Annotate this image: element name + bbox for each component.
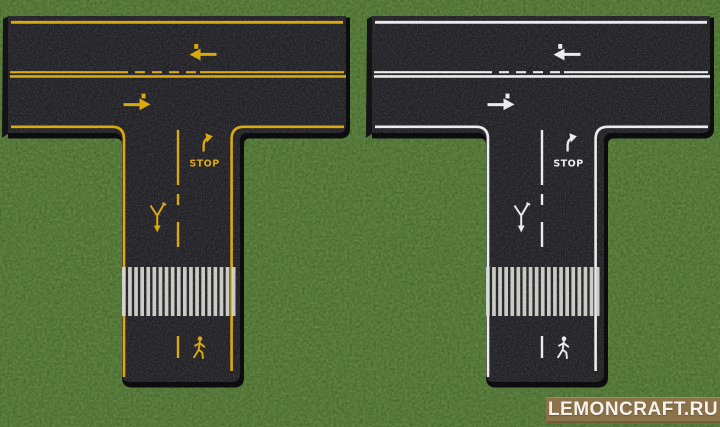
- stop-marking-text: STOP: [189, 159, 219, 170]
- minecraft-road-screenshot: STOP: [0, 0, 720, 427]
- road-left-side-face: [2, 16, 9, 138]
- scene-canvas: STOP: [0, 0, 720, 427]
- watermark-text: LEMONCRAFT.RU: [548, 399, 718, 421]
- road-left-side-face: [366, 16, 373, 138]
- stop-marking-text: STOP: [553, 159, 583, 170]
- watermark-banner: LEMONCRAFT.RU: [546, 397, 720, 423]
